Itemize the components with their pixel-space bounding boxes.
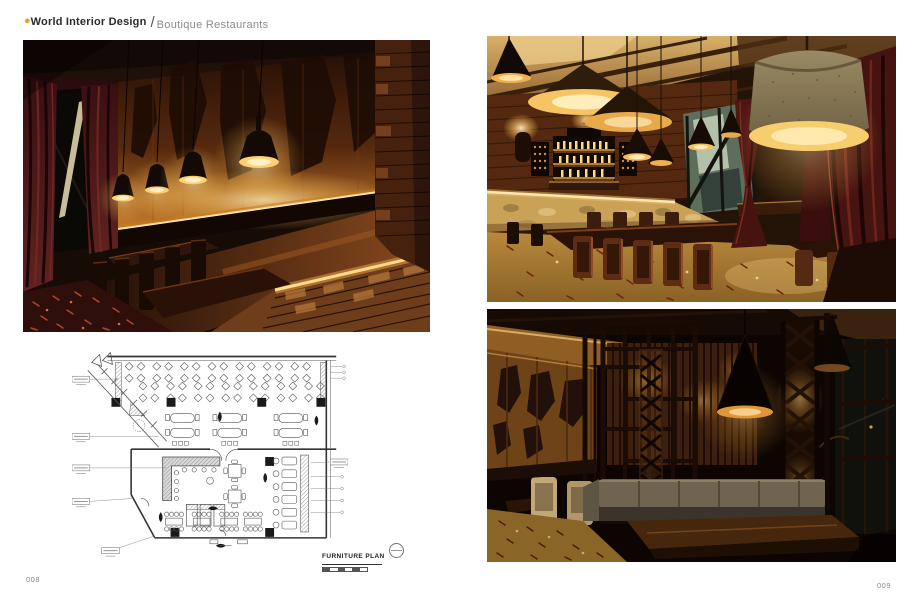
photo-right-top-scene (487, 36, 896, 302)
plan-title: FURNITURE PLAN (322, 553, 385, 560)
back-bar-shelves (549, 128, 619, 190)
header-title: World Interior Design (31, 16, 147, 28)
photo-left-main (23, 40, 430, 332)
plan-reference-circle (389, 543, 404, 558)
photo-right-bottom (487, 309, 896, 562)
header-subtitle: Boutique Restaurants (157, 19, 269, 31)
book-spread: ●World Interior Design/Boutique Restaura… (0, 0, 919, 600)
brick-pillar (375, 40, 430, 272)
plan-title-block: FURNITURE PLAN (322, 545, 412, 572)
bullet-icon: ● (24, 15, 31, 27)
plan-title-rule (322, 564, 382, 565)
plan-drawing (72, 350, 348, 570)
banquette-sofa (583, 479, 825, 521)
header: ●World Interior Design/Boutique Restaura… (24, 12, 268, 30)
photo-left-scene (23, 40, 430, 332)
plan-scale-bar (322, 567, 368, 572)
header-separator: / (151, 14, 155, 31)
page-number-right: 009 (877, 581, 891, 590)
furniture-plan (72, 350, 348, 570)
page-number-left: 008 (26, 575, 40, 584)
photo-right-top (487, 36, 896, 302)
carved-wall-left (487, 349, 597, 469)
photo-right-bottom-scene (487, 309, 896, 562)
